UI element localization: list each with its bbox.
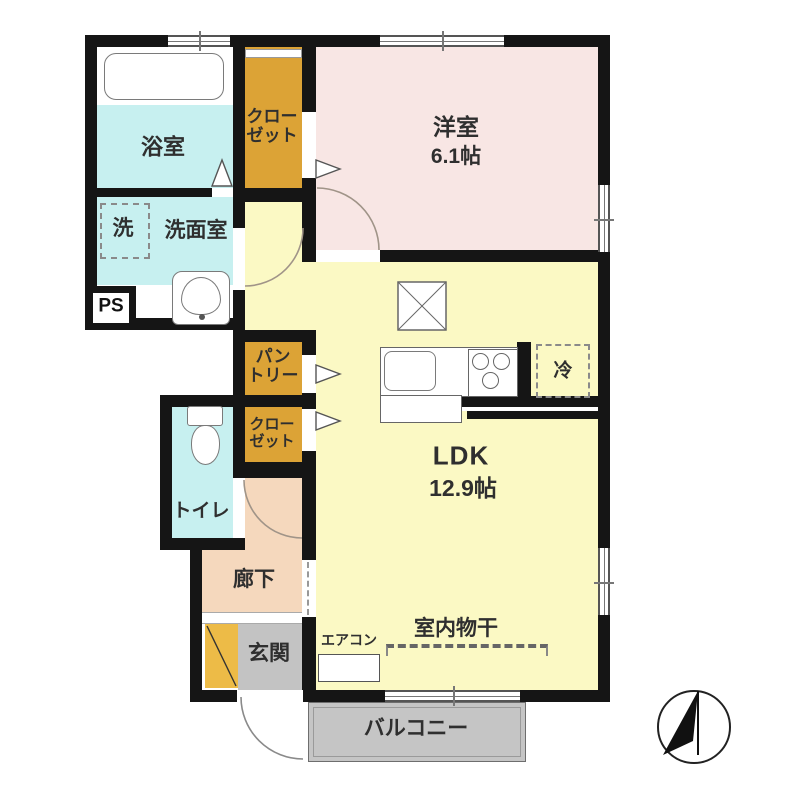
wall-bottom-a [190, 690, 237, 702]
label-pantry: パン トリー [248, 347, 299, 385]
label-hallway: 廊下 [233, 568, 275, 592]
kitchen-wall-slot [460, 407, 598, 411]
door-arc-entrance [241, 697, 303, 759]
label-toilet: トイレ [172, 500, 229, 521]
aircon-unit-icon [318, 654, 380, 682]
floor-plan: 浴室 洗 洗面室 PS クロー ゼット 洋室 6.1帖 パン トリー クロー ゼ… [0, 0, 800, 800]
north-arrow-compass-icon [658, 691, 730, 763]
wall-closet-west-b [302, 178, 316, 262]
bathtub-icon [104, 53, 224, 100]
washbasin-drain [199, 314, 205, 320]
label-western: 洋室 [433, 115, 479, 141]
wall-bath-divider [97, 188, 212, 197]
wall-kitchen-fridge [517, 342, 531, 400]
label-ldk: LDK [433, 441, 489, 470]
window-top-bath [168, 35, 230, 47]
room-hallway [245, 478, 302, 612]
wall-closet-west-a [302, 47, 316, 112]
kitchen-sink-icon [384, 351, 436, 391]
wall-toilet-top [160, 395, 316, 407]
wall-lowerleft-outer [190, 550, 202, 697]
shoe-cabinet [205, 624, 238, 688]
wall-washroom-right-b [233, 290, 245, 330]
label-entrance: 玄関 [248, 642, 290, 666]
wall-western-bottom [380, 250, 610, 262]
window-top-western [380, 35, 504, 47]
wall-top-outer [85, 35, 610, 47]
label-western-size: 6.1帖 [431, 145, 481, 169]
window-right-western [598, 185, 610, 252]
closet-top-door-track [245, 49, 302, 58]
wall-toilet-right [233, 407, 245, 462]
wall-entrance-ldk [302, 617, 316, 690]
label-closet-top: クロー ゼット [247, 107, 298, 145]
label-indoor-drying: 室内物干 [414, 617, 498, 641]
label-ldk-size: 12.9帖 [429, 476, 497, 502]
label-bath: 浴室 [141, 136, 185, 161]
wall-hall-ldk-a [302, 478, 316, 560]
label-closet-mid: クロー ゼット [249, 417, 294, 451]
washbasin-bowl [181, 277, 221, 315]
wall-toilet-left [160, 395, 172, 550]
label-aircon: エアコン [321, 633, 377, 649]
kitchen-counter-ext [380, 395, 462, 423]
label-balcony: バルコニー [364, 717, 469, 741]
drying-pole-dashed-line [386, 644, 548, 656]
toilet-tank-icon [187, 406, 223, 426]
burner-icon [493, 353, 510, 370]
wall-toilet-bottom [160, 538, 245, 550]
wall-closet-mid-bottom [233, 462, 316, 478]
toilet-bowl-icon [191, 425, 220, 465]
wall-pantry-right-a [302, 330, 316, 355]
room-ldk-joint [302, 262, 316, 330]
compass-needle-filled [663, 691, 698, 755]
window-right-ldk [598, 548, 610, 615]
entrance-step [202, 612, 302, 624]
label-ps: PS [98, 295, 123, 316]
room-ldk-corridor [245, 202, 302, 330]
wall-kitchen-counter-b [467, 411, 598, 419]
wall-washroom-closet [233, 47, 245, 188]
burner-icon [482, 372, 499, 389]
compass-circle [658, 691, 730, 763]
hallway-opening-dashed [307, 562, 309, 615]
label-fridge: 冷 [553, 360, 572, 381]
burner-icon [472, 353, 489, 370]
label-washer: 洗 [113, 217, 134, 241]
window-balcony-door [385, 690, 520, 702]
label-washroom: 洗面室 [165, 219, 228, 243]
